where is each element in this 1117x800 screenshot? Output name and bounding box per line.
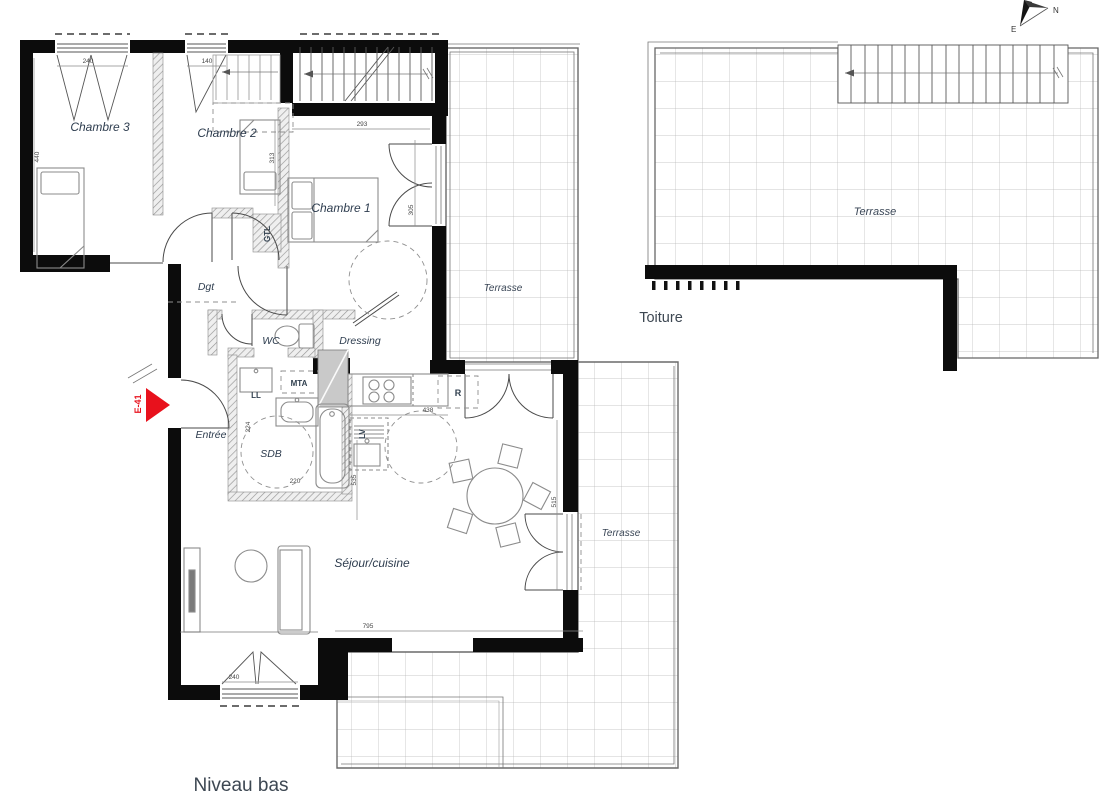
coffee-table (235, 550, 267, 582)
roof-wall-hatch-ticks (652, 281, 740, 290)
label-entree: Entrée (196, 429, 227, 441)
compass: N E (1011, 0, 1059, 34)
dim-chambre1-width: 293 (357, 121, 368, 128)
label-dressing: Dressing (339, 335, 381, 347)
entry-arrow-icon (146, 388, 170, 422)
terrace-upper (440, 44, 580, 362)
sink-dishwasher (350, 418, 388, 470)
entry-tag: E-41 (133, 394, 143, 413)
dim-chambre2-window: 140 (202, 58, 213, 65)
label-fridge: R (455, 388, 462, 398)
toilet (275, 324, 314, 348)
level-title: Niveau bas (193, 775, 288, 796)
dim-chambre1-door: 305 (408, 204, 415, 215)
turning-circle-chambre1 (349, 241, 427, 319)
wardrobe-dressing (318, 350, 348, 407)
label-chambre3: Chambre 3 (70, 120, 130, 134)
label-mta: MTA (291, 379, 308, 388)
floorplan-page: GTL (0, 0, 1117, 800)
compass-north-label: N (1053, 6, 1059, 15)
label-sejour: Séjour/cuisine (334, 556, 410, 570)
dim-chambre3-height: 440 (34, 151, 41, 162)
washing-machine (240, 368, 272, 392)
window-chambre3 (57, 44, 128, 120)
label-wc: WC (262, 335, 280, 347)
dim-chambre2-depth: 313 (269, 152, 276, 163)
label-toiture: Toiture (639, 310, 683, 326)
floorplan-canvas: GTL (0, 0, 1117, 800)
label-terrasse-roof: Terrasse (854, 206, 896, 218)
dim-sdb-width: 220 (290, 478, 301, 485)
left-plan: GTL (20, 34, 678, 768)
dim-sdb-depth: 224 (245, 421, 252, 432)
tv-stand (184, 548, 200, 632)
roof-stairs (838, 45, 1068, 103)
label-chambre1: Chambre 1 (311, 201, 370, 215)
label-lv: LV (358, 429, 367, 439)
roof-plan: Terrasse Toiture (639, 42, 1098, 371)
bed-chambre3 (37, 168, 84, 268)
label-terrasse-lower: Terrasse (602, 528, 641, 539)
label-dgt: Dgt (198, 281, 215, 293)
dim-sejour-width: 795 (363, 623, 374, 630)
window-chambre2 (187, 44, 226, 112)
compass-east-label: E (1011, 25, 1016, 34)
roof-walls (645, 265, 957, 371)
dining-table (447, 444, 550, 547)
entry-arrow: E-41 (128, 364, 170, 422)
sofa (278, 546, 310, 634)
stairs-lower (213, 47, 433, 132)
dim-sejour-left: 535 (351, 474, 358, 485)
label-chambre2: Chambre 2 (197, 126, 257, 140)
dim-sejour-right: 515 (551, 496, 558, 507)
label-terrasse-upper: Terrasse (484, 283, 523, 294)
dim-chambre3-window: 240 (83, 58, 94, 65)
dim-sejour-window: 240 (229, 674, 240, 681)
dim-kitchen: 438 (423, 407, 434, 414)
label-ll: LL (251, 391, 261, 400)
label-sdb: SDB (260, 448, 282, 460)
kitchen-counter (348, 374, 448, 406)
turning-circle-sejour (385, 411, 457, 483)
